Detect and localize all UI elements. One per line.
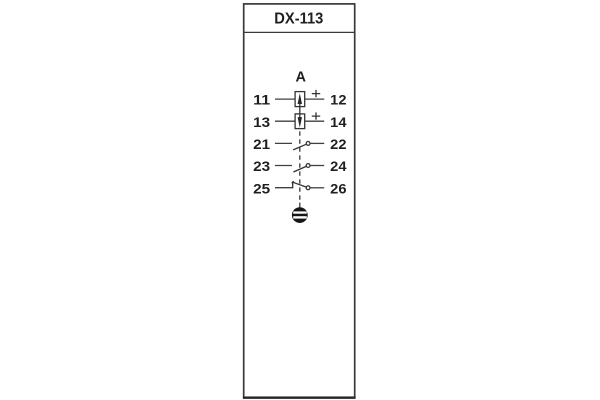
- svg-text:22: 22: [330, 136, 347, 152]
- svg-text:14: 14: [330, 114, 347, 130]
- svg-text:11: 11: [253, 92, 270, 108]
- svg-text:25: 25: [253, 180, 270, 196]
- svg-text:21: 21: [253, 136, 270, 152]
- svg-text:A: A: [295, 70, 306, 86]
- svg-text:26: 26: [330, 180, 347, 196]
- svg-text:DX-113: DX-113: [274, 11, 323, 28]
- svg-text:12: 12: [330, 92, 347, 108]
- svg-text:23: 23: [253, 158, 270, 174]
- svg-text:13: 13: [253, 114, 270, 130]
- svg-text:24: 24: [330, 158, 347, 174]
